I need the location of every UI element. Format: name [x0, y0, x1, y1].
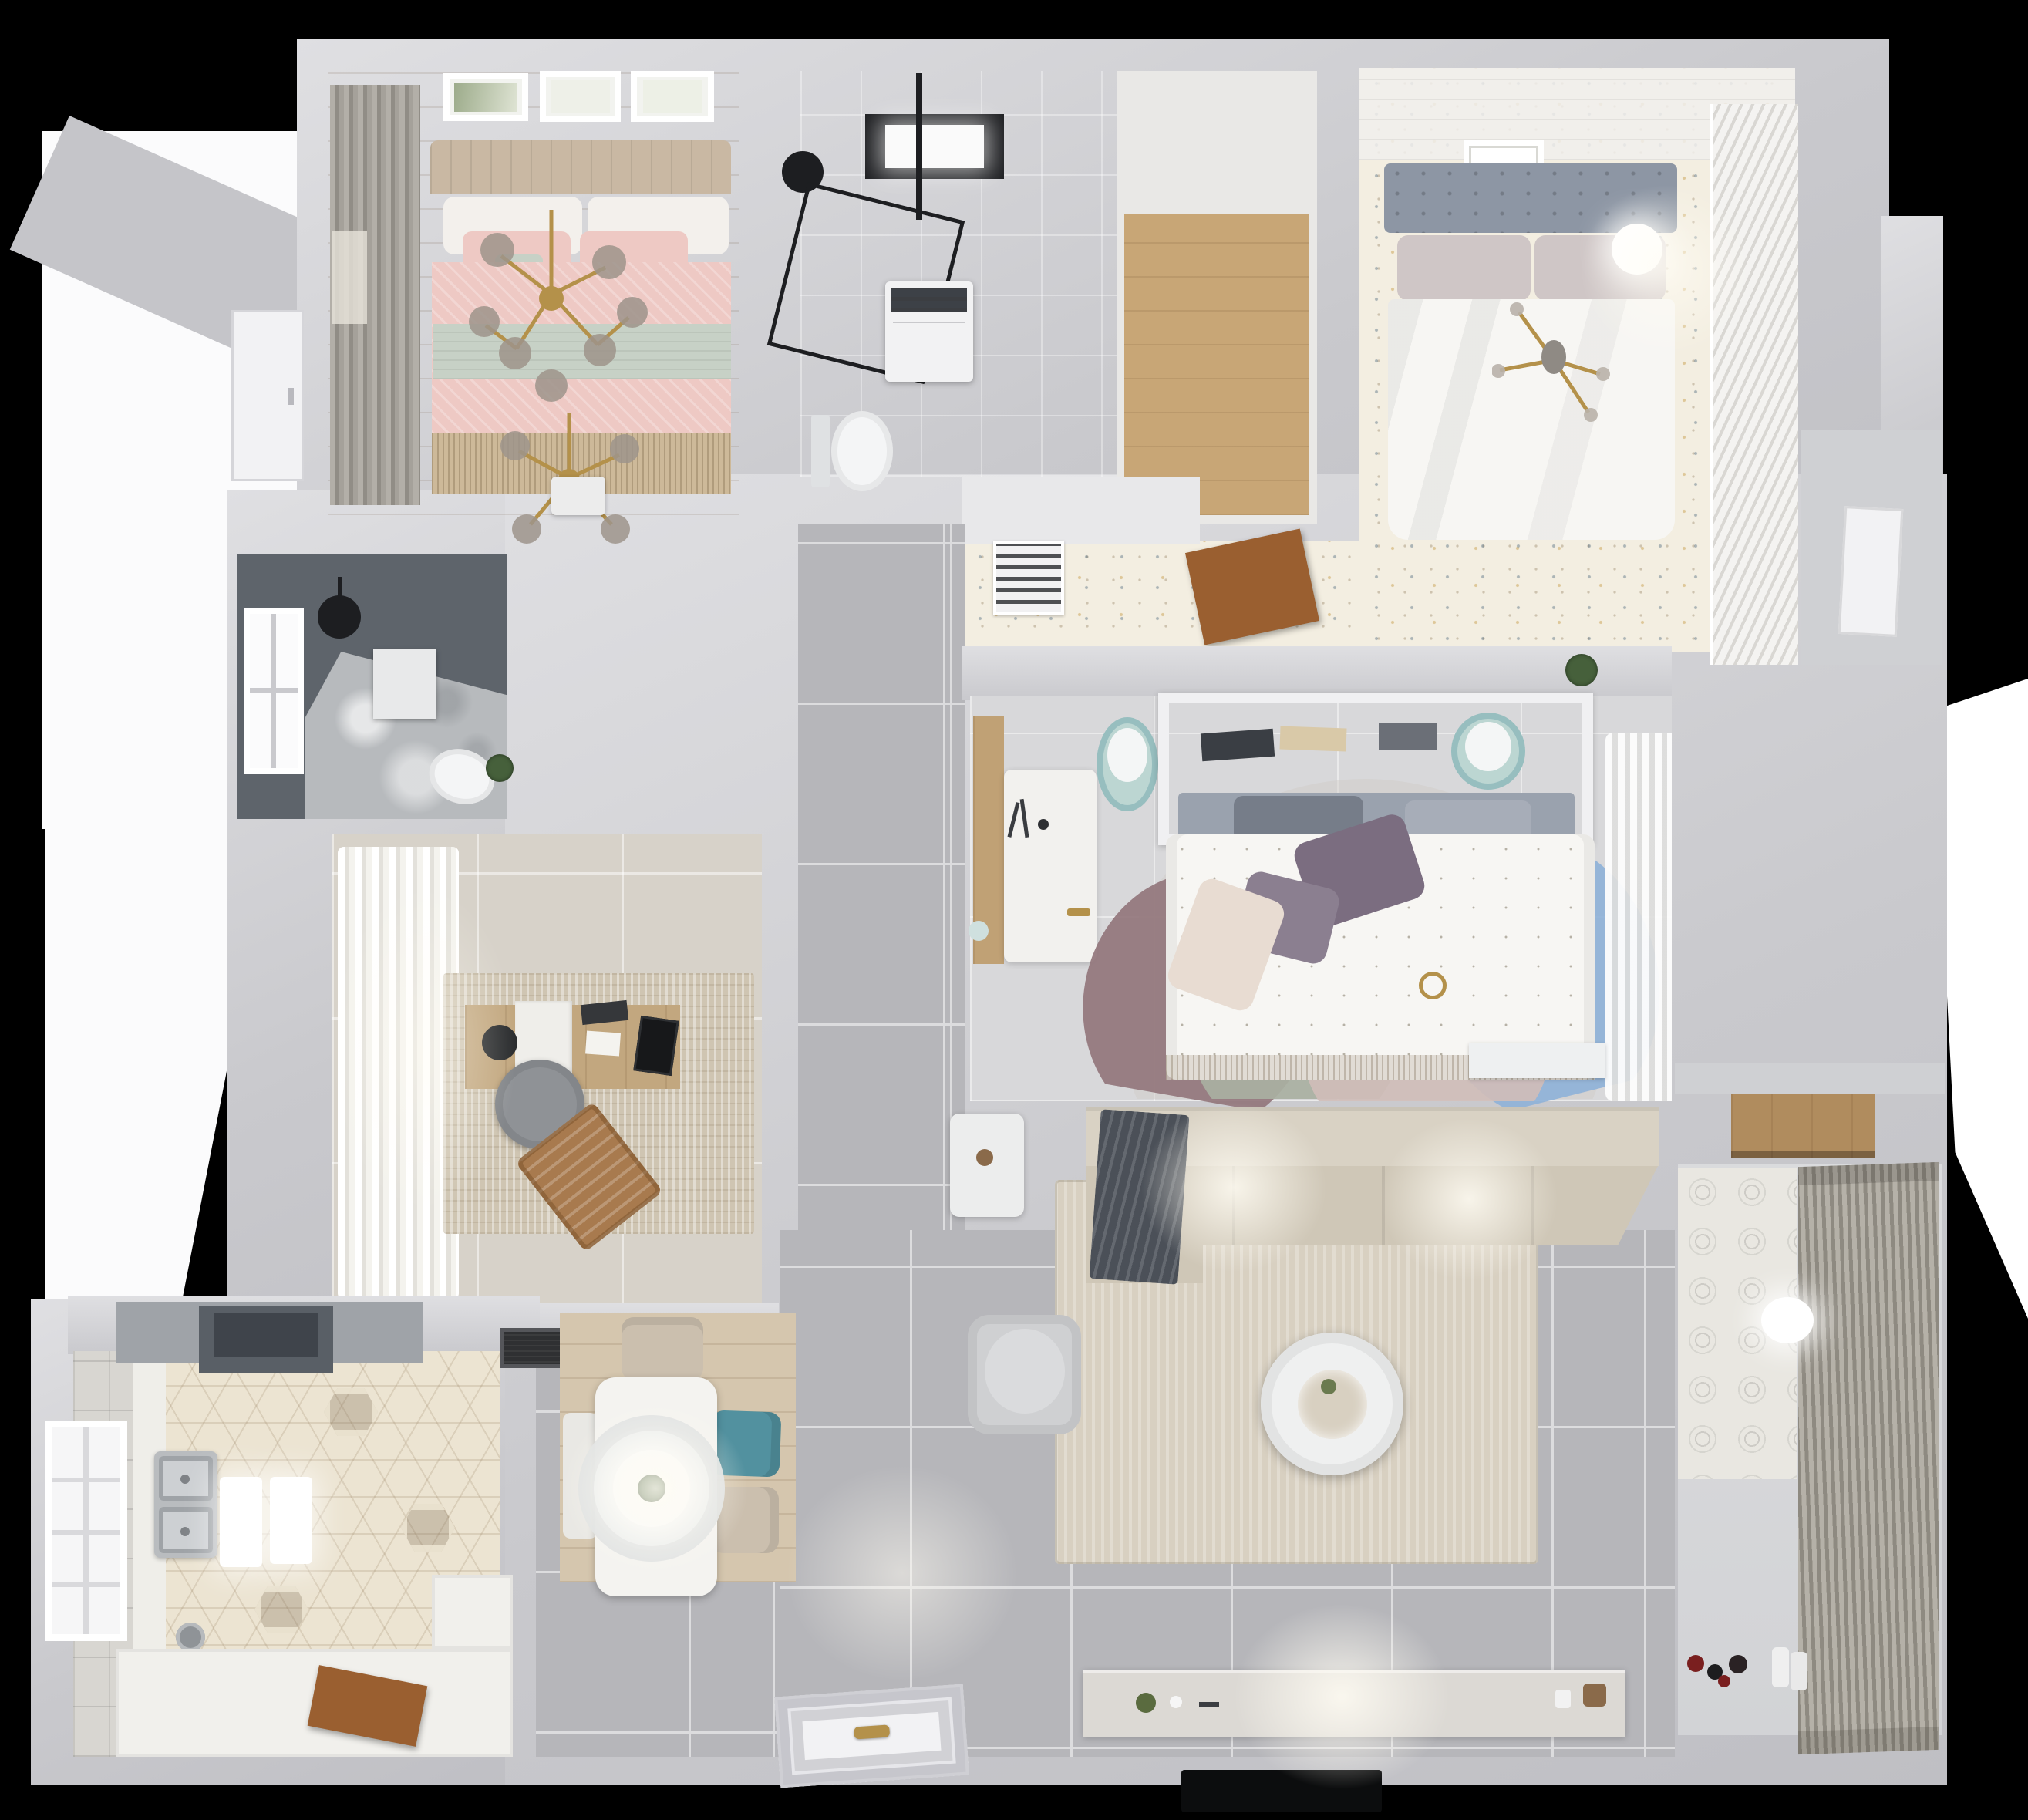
toy: [1687, 1655, 1704, 1672]
console-plant: [1136, 1693, 1156, 1713]
desk-knob: [1038, 819, 1049, 830]
bedroom2-headboard: [1384, 163, 1677, 233]
washer-control-panel: [891, 288, 967, 312]
kitchen-window: [45, 1421, 127, 1641]
gold-ring-lamp: [1419, 972, 1447, 999]
bedroom3-desk: [1004, 770, 1097, 962]
corridor-floor: [798, 524, 965, 1232]
window-mullion: [52, 1478, 120, 1482]
ac-vent-grille: [993, 541, 1064, 615]
art-image: [551, 80, 610, 113]
washer-line: [893, 322, 965, 323]
gold-accent: [1067, 908, 1090, 916]
entry-door-ornate: [774, 1684, 969, 1788]
pillow: [1397, 235, 1531, 301]
white-door: [231, 310, 304, 481]
dining-chair-beige: [622, 1317, 703, 1380]
gold-branch-chandelier: [455, 202, 648, 403]
apartment-floorplan-scene: [0, 0, 2028, 1820]
toy: [1718, 1675, 1730, 1687]
closet-wood-floor: [1124, 214, 1309, 515]
louvered-wardrobe: [1710, 104, 1798, 665]
bedroom1-dresser: [551, 477, 605, 515]
armchair: [968, 1315, 1081, 1434]
bedroom1-window-light: [332, 231, 367, 324]
table-deco: [1321, 1379, 1336, 1394]
balcony-ceiling-lamp: [1761, 1297, 1814, 1343]
plant: [486, 754, 514, 782]
skylight-glass: [885, 125, 984, 168]
console-pot-white: [1555, 1690, 1571, 1708]
shower-head: [318, 595, 361, 639]
shelf-books-gray: [1379, 723, 1437, 750]
side-table-deco: [976, 1149, 993, 1166]
console-cup: [1170, 1696, 1182, 1708]
window-mullion: [250, 688, 298, 693]
range-hood: [199, 1306, 333, 1373]
desk-pen: [1020, 799, 1029, 838]
black-laptop: [633, 1016, 679, 1076]
bedroom1-headboard: [430, 140, 731, 194]
wood-niche-shelf: [1731, 1094, 1875, 1158]
desk-monitor: [482, 1025, 517, 1060]
tv-panel: [1181, 1770, 1382, 1812]
gold-cross-chandelier: [1492, 297, 1615, 424]
toilet-bowl: [831, 411, 893, 491]
desk-pen: [1008, 802, 1020, 838]
hood-vent: [214, 1313, 318, 1357]
paper-roll: [1791, 1652, 1807, 1690]
armchair-cushion: [985, 1329, 1065, 1414]
window-mullion: [52, 1582, 120, 1587]
console-remote: [1199, 1702, 1219, 1707]
study-curtain: [338, 847, 459, 1299]
art-image: [454, 83, 517, 112]
wall-art-frame: [631, 71, 714, 122]
toilet-tank: [811, 415, 830, 487]
sink-drain: [180, 1527, 190, 1536]
round-stool-teal: [1097, 717, 1158, 811]
wall-cabinet: [373, 649, 436, 719]
side-table: [950, 1114, 1024, 1217]
sink-basin: [159, 1507, 213, 1553]
balcony-ledge: [1675, 1063, 1945, 1094]
tv-console: [1083, 1670, 1625, 1737]
kitchen-counter-corner: [432, 1575, 513, 1649]
bathroom2-window: [244, 608, 304, 774]
white-door: [1838, 506, 1904, 637]
dark-throw-blanket: [1089, 1109, 1189, 1284]
shelf-books-dark: [1201, 729, 1275, 761]
paper-roll: [1772, 1647, 1789, 1687]
bedroom2-wall-band: [962, 477, 1200, 544]
bathroom1-skylight: [865, 114, 1004, 179]
table-plant-centerpiece: [638, 1475, 665, 1502]
wall-art-frame: [443, 73, 528, 121]
sink-basin: [159, 1456, 213, 1501]
glowing-board: [270, 1477, 312, 1564]
toy: [1729, 1655, 1747, 1673]
round-coffee-table: [1261, 1333, 1403, 1475]
desk-cup: [969, 921, 989, 941]
window-mullion: [52, 1530, 120, 1535]
paper-sheet: [585, 1031, 621, 1057]
bedroom3-sheer-curtain: [1605, 733, 1672, 1101]
wall-art-frame: [540, 71, 621, 122]
vertical-blinds: [1798, 1162, 1939, 1754]
console-pot: [1583, 1684, 1606, 1707]
gold-door-handle: [854, 1724, 890, 1739]
shelf-books-tan: [1280, 726, 1347, 752]
sphere-lamp: [1612, 224, 1662, 275]
shelf-plant: [1565, 654, 1598, 686]
stool-top: [1107, 728, 1147, 782]
faucet-base: [176, 1623, 205, 1652]
art-image: [643, 80, 702, 113]
sink-drain: [180, 1475, 190, 1484]
double-sink: [154, 1451, 217, 1558]
glowing-board: [220, 1477, 262, 1567]
window-bench: [1469, 1043, 1605, 1078]
washer-cabinet: [885, 281, 973, 382]
door-handle: [288, 388, 294, 405]
shower-pipe: [916, 73, 922, 220]
